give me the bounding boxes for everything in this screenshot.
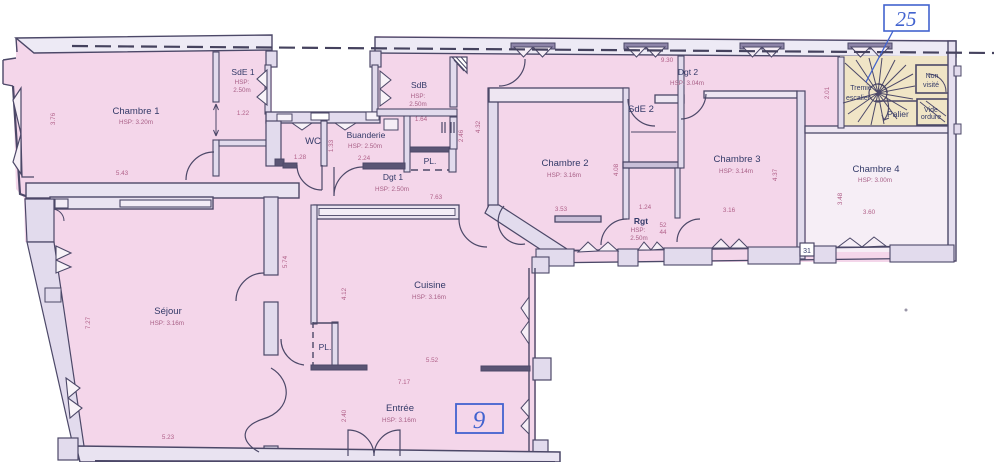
svg-text:4.37: 4.37 — [772, 168, 779, 181]
svg-text:2.24: 2.24 — [358, 155, 371, 162]
svg-text:3.53: 3.53 — [555, 206, 568, 213]
svg-text:5.43: 5.43 — [116, 170, 129, 177]
svg-text:HSP: 3.04m: HSP: 3.04m — [670, 80, 704, 87]
svg-text:HSP: 2.50m: HSP: 2.50m — [348, 143, 382, 150]
svg-text:5.23: 5.23 — [162, 434, 175, 441]
svg-text:52: 52 — [659, 222, 667, 229]
svg-text:Cuisine: Cuisine — [414, 280, 446, 291]
svg-text:PL.: PL. — [319, 342, 332, 352]
svg-text:9: 9 — [473, 407, 486, 434]
svg-text:1.28: 1.28 — [294, 154, 307, 161]
svg-text:Palier: Palier — [887, 109, 909, 119]
svg-text:3.16: 3.16 — [723, 207, 736, 214]
svg-text:Entrée: Entrée — [386, 403, 414, 414]
svg-text:HSP: 2.50m: HSP: 2.50m — [375, 186, 409, 193]
svg-text:HSP: 3.00m: HSP: 3.00m — [858, 177, 892, 184]
svg-text:Chambre 4: Chambre 4 — [853, 164, 900, 175]
svg-text:2.50m: 2.50m — [233, 87, 251, 94]
svg-text:2.50m: 2.50m — [409, 101, 427, 108]
svg-text:3.48: 3.48 — [837, 192, 844, 205]
svg-text:HSP:: HSP: — [235, 79, 250, 86]
svg-text:7.27: 7.27 — [85, 316, 92, 329]
svg-text:4.12: 4.12 — [341, 287, 348, 300]
svg-text:HSP: 3.16m: HSP: 3.16m — [547, 172, 581, 179]
svg-text:Chambre 2: Chambre 2 — [542, 158, 589, 169]
svg-text:PL.: PL. — [424, 156, 437, 166]
svg-text:Séjour: Séjour — [154, 306, 181, 317]
svg-text:2.01: 2.01 — [824, 86, 831, 99]
svg-text:escalier: escalier — [846, 95, 871, 102]
svg-text:HSP: 3.16m: HSP: 3.16m — [412, 294, 446, 301]
svg-text:1.33: 1.33 — [328, 139, 335, 152]
svg-text:Non: Non — [926, 73, 939, 80]
svg-text:Chambre 1: Chambre 1 — [113, 106, 160, 117]
svg-text:2.40: 2.40 — [341, 409, 348, 422]
svg-text:9.30: 9.30 — [661, 57, 674, 64]
svg-text:1.64: 1.64 — [415, 116, 428, 123]
svg-text:7.63: 7.63 — [430, 194, 443, 201]
svg-text:SdE 1: SdE 1 — [231, 67, 254, 77]
svg-text:HSP:: HSP: — [411, 93, 426, 100]
svg-text:HSP: 3.16m: HSP: 3.16m — [150, 320, 184, 327]
svg-text:4.08: 4.08 — [613, 163, 620, 176]
svg-text:7.17: 7.17 — [398, 379, 411, 386]
svg-text:visité: visité — [923, 82, 939, 89]
svg-text:Buanderie: Buanderie — [347, 130, 386, 140]
svg-text:1.24: 1.24 — [639, 204, 652, 211]
svg-text:4.32: 4.32 — [475, 120, 482, 133]
svg-text:WC: WC — [305, 136, 321, 147]
svg-text:SdB: SdB — [411, 80, 427, 90]
svg-text:3.76: 3.76 — [50, 112, 57, 125]
svg-text:ordure: ordure — [921, 114, 941, 121]
svg-text:2.46: 2.46 — [458, 129, 465, 142]
svg-text:SdE 2: SdE 2 — [628, 104, 654, 115]
svg-text:44: 44 — [659, 229, 667, 236]
svg-text:Dgt 1: Dgt 1 — [383, 172, 404, 182]
svg-text:2.50m: 2.50m — [630, 235, 648, 242]
svg-text:Tremie: Tremie — [850, 85, 872, 92]
svg-text:3.60: 3.60 — [863, 209, 876, 216]
svg-text:1.22: 1.22 — [237, 110, 250, 117]
svg-text:5.52: 5.52 — [426, 357, 439, 364]
svg-text:31: 31 — [803, 248, 811, 255]
svg-text:25: 25 — [896, 7, 917, 31]
svg-text:HSP: 3.20m: HSP: 3.20m — [119, 119, 153, 126]
svg-text:HSP: 3.16m: HSP: 3.16m — [382, 417, 416, 424]
svg-text:Dgt 2: Dgt 2 — [678, 67, 699, 77]
svg-text:Chambre 3: Chambre 3 — [714, 154, 761, 165]
svg-text:Rgt: Rgt — [634, 216, 648, 226]
svg-text:HSP:: HSP: — [631, 227, 646, 234]
svg-text:5.74: 5.74 — [282, 255, 289, 268]
svg-text:Vide: Vide — [924, 107, 938, 114]
svg-text:HSP: 3.14m: HSP: 3.14m — [719, 168, 753, 175]
